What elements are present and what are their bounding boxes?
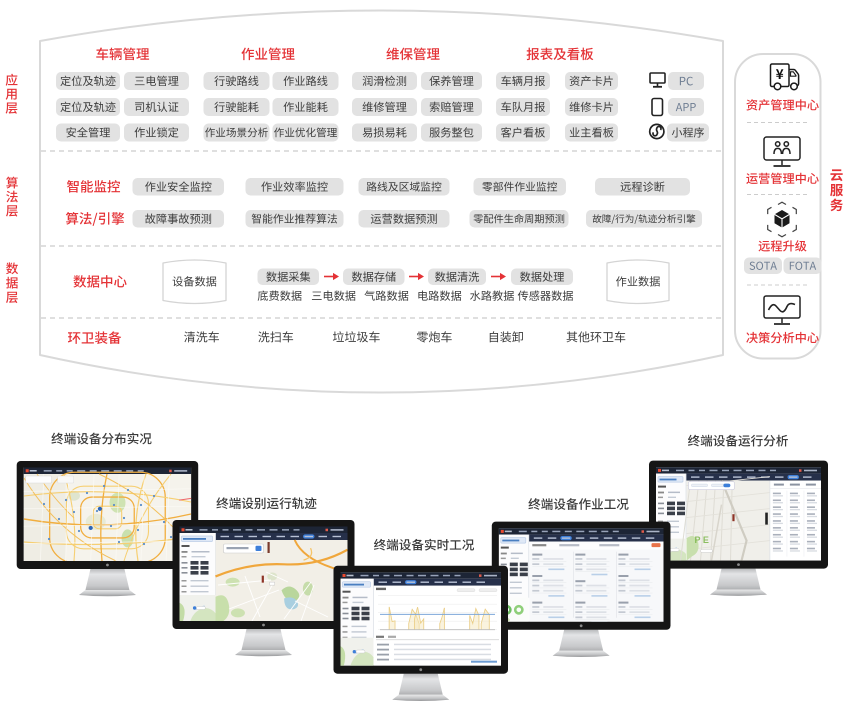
svg-text:P E: P E — [695, 535, 709, 545]
